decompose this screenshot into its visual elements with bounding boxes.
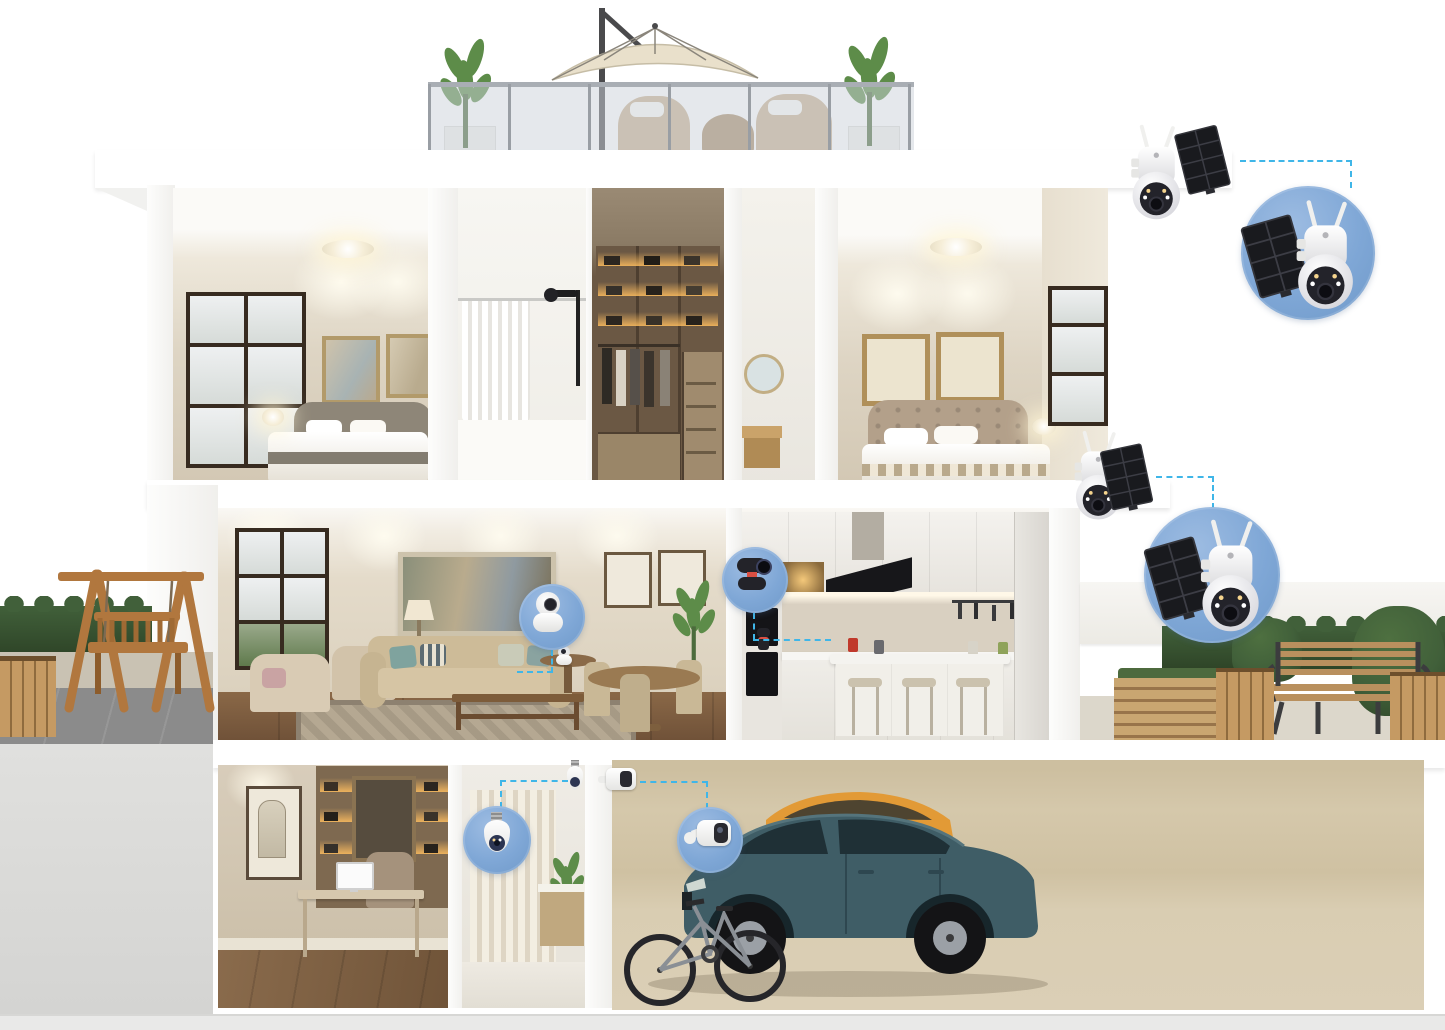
window-pane	[1052, 376, 1104, 422]
connector-living-h	[517, 671, 553, 673]
bedroom-right-window	[1048, 286, 1108, 426]
bar-stool-2-legs	[906, 687, 909, 735]
connector-bulb-v	[500, 780, 502, 808]
study-desk-top	[298, 890, 424, 899]
sofa-pillow-striped	[420, 644, 446, 666]
study-monitor	[336, 862, 374, 890]
window-pane	[248, 296, 302, 343]
roof-callout-ptz-camera	[1286, 196, 1362, 320]
main-right-exterior-wall	[1049, 508, 1080, 742]
closet-folded-items	[604, 256, 620, 265]
living-room-window	[235, 528, 329, 670]
closet-shelf-glow-3	[598, 312, 718, 326]
bedroom-left-art-1	[322, 336, 380, 404]
shower-pipe	[576, 290, 580, 386]
roof-slab	[95, 150, 1232, 188]
sofa-pillow-teal	[389, 645, 417, 670]
hall-vanity	[742, 426, 782, 438]
connector-kitchen-h	[753, 639, 831, 641]
kitchen-island-body	[836, 664, 1004, 736]
closet-drawer-slits	[686, 362, 716, 472]
upper-divider-wall-1	[428, 188, 458, 482]
armchair-left-pillow	[262, 668, 286, 688]
bedroom-right-ceiling-lamp	[930, 238, 982, 256]
sofa-pillow-sage	[498, 644, 524, 666]
terrace-railing-posts	[428, 84, 914, 152]
window-pane	[248, 347, 302, 403]
connector-living-v	[551, 650, 553, 673]
connector-bulb-h	[500, 780, 568, 782]
living-room-mini-camera-lens	[561, 649, 566, 654]
dining-print-1	[604, 552, 652, 608]
garage-mini-camera-face	[620, 771, 632, 787]
garage-callout-camera-lens	[717, 827, 723, 833]
wooden-swing	[36, 548, 218, 716]
vehicle-shadow	[648, 971, 1048, 997]
right-yard-planter-left	[1216, 668, 1274, 742]
bar-stool-3	[956, 678, 990, 687]
study-books	[324, 782, 338, 791]
mid-floor-slab	[147, 480, 1170, 508]
bar-stool-3-legs	[960, 687, 963, 735]
study-drawing-dome	[258, 800, 286, 858]
kitchen-niche-light	[782, 562, 824, 592]
kitchen-callout-camera-base	[738, 577, 766, 590]
closet-shelf-glow-2	[598, 282, 718, 296]
connector-floor2-h	[1156, 476, 1214, 478]
bedroom-left-table-lamp	[262, 408, 284, 426]
kitchen-mini-camera-head	[757, 628, 770, 637]
bedroom-left-ceiling-lamp	[322, 240, 374, 258]
living-side-table-column	[564, 665, 572, 693]
bedroom-left-throw	[268, 452, 428, 464]
bar-stool-1-legs	[852, 687, 855, 735]
kitchen-counter-items	[848, 638, 858, 652]
study-monitor-stand	[350, 888, 358, 892]
closet-hanging-clothes	[602, 348, 612, 404]
window-pane	[190, 408, 244, 464]
closet-bottom-drawers	[598, 432, 680, 482]
range-hood-chimney	[852, 512, 884, 560]
study-wall-painting	[352, 776, 416, 862]
connector-floor2-v	[1212, 476, 1214, 509]
connector-roof-h	[1240, 160, 1352, 162]
window-pane	[284, 578, 325, 620]
window-pane	[284, 532, 325, 574]
window-pane	[1052, 327, 1104, 373]
garage-callout-camera-face	[714, 823, 728, 843]
closet-hanging-rod	[598, 344, 680, 347]
kitchen-callout-camera-lens	[756, 559, 772, 575]
living-callout-camera-body	[533, 613, 563, 632]
floor2-callout-ptz-camera	[1190, 516, 1268, 642]
connector-roof-v	[1350, 160, 1352, 188]
upper-divider-wall-4	[815, 188, 838, 482]
connector-garage-h	[640, 781, 708, 783]
shower-half-wall	[458, 420, 588, 482]
kitchen-fridge	[1014, 512, 1050, 742]
window-pane	[1052, 290, 1104, 323]
bar-stool-1	[848, 678, 882, 687]
bar-stool-2	[902, 678, 936, 687]
living-room-mini-camera-body	[556, 655, 572, 665]
coffee-table-top	[452, 694, 584, 702]
basement-left-gray-wall	[0, 744, 213, 1014]
study-baseboard	[218, 938, 455, 950]
lower-bath-vanity-top	[538, 884, 586, 892]
lower-bath-vanity	[540, 892, 584, 946]
hall-vanity-cabinet	[744, 438, 780, 468]
living-table-lamp-shade	[404, 600, 434, 620]
upper-left-exterior-wall	[147, 185, 175, 485]
dining-chair-front	[620, 674, 650, 732]
hall-round-mirror	[744, 354, 784, 394]
study-floor	[218, 950, 455, 1008]
kitchen-hanging-utensils	[958, 603, 962, 619]
doorway-bulb-mini-camera-face	[570, 777, 580, 787]
bulb-callout-lens	[494, 840, 500, 846]
kitchen-island-top	[830, 654, 1010, 664]
study-desk-legs	[303, 899, 307, 957]
window-pane	[190, 296, 244, 343]
shower-curtain	[462, 301, 530, 421]
bedroom-right-duvet	[862, 444, 1050, 482]
upper-divider-wall-3	[724, 188, 742, 482]
connector-garage-v	[706, 781, 708, 809]
shower-head-disc	[544, 288, 558, 302]
garage-vehicles	[598, 758, 1060, 1014]
connector-kitchen-v	[753, 613, 755, 640]
window-pane	[239, 532, 280, 574]
bedroom-right-art-1	[862, 334, 930, 406]
living-callout-camera-lens	[544, 598, 557, 611]
bedroom-right-striped-throw	[862, 464, 1050, 476]
window-pane	[190, 347, 244, 403]
kitchen-pillar-wall	[726, 508, 742, 742]
scene-canvas	[0, 0, 1445, 1030]
window-pane	[239, 578, 280, 620]
ground-strip	[0, 1014, 1445, 1030]
kitchen-oven-lower	[746, 652, 778, 696]
right-yard-planter-right	[1390, 672, 1445, 744]
bedroom-right-art-2	[936, 332, 1004, 402]
coffee-table-shelf	[460, 714, 576, 719]
lower-bath-floor	[462, 962, 585, 1008]
